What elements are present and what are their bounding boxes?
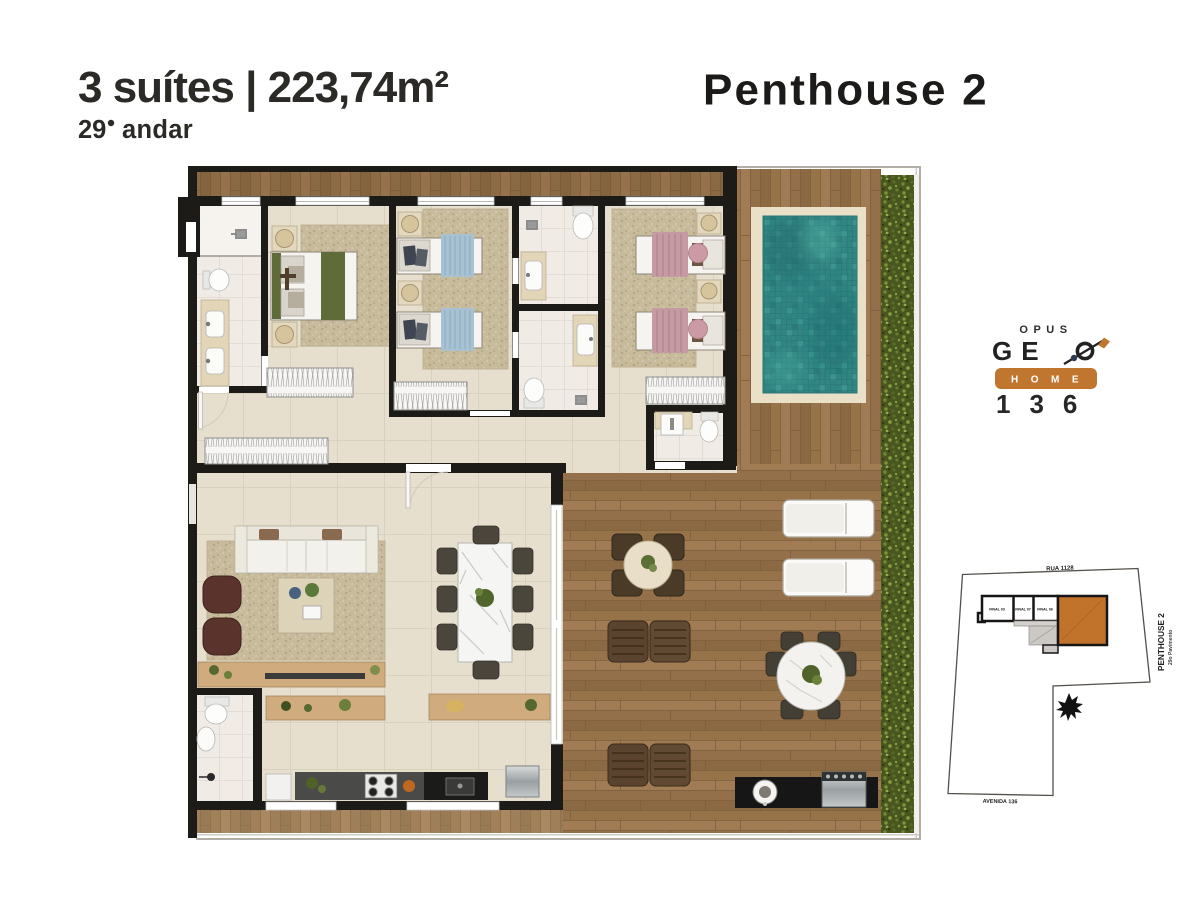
svg-text:HOME: HOME <box>1011 375 1091 386</box>
svg-text:FINAL 06: FINAL 06 <box>1037 608 1053 612</box>
svg-text:FINAL 07: FINAL 07 <box>1015 608 1031 612</box>
svg-text:136: 136 <box>996 389 1096 419</box>
svg-text:AVENIDA 136: AVENIDA 136 <box>983 799 1018 806</box>
svg-text:29o Pavimento: 29o Pavimento <box>1168 630 1174 665</box>
svg-text:Penthouse 2: Penthouse 2 <box>703 66 989 115</box>
svg-text:29: 29 <box>78 116 106 144</box>
svg-text:GE: GE <box>992 336 1048 366</box>
svg-text:FINAL 03: FINAL 03 <box>989 608 1005 612</box>
svg-text:OPUS: OPUS <box>1019 324 1072 336</box>
svg-text:PENTHOUSE 2: PENTHOUSE 2 <box>1157 613 1166 671</box>
svg-text:3 suítes | 223,74m²: 3 suítes | 223,74m² <box>78 63 448 113</box>
svg-text:RUA 1128: RUA 1128 <box>1046 566 1074 573</box>
svg-text:andar: andar <box>122 116 193 144</box>
